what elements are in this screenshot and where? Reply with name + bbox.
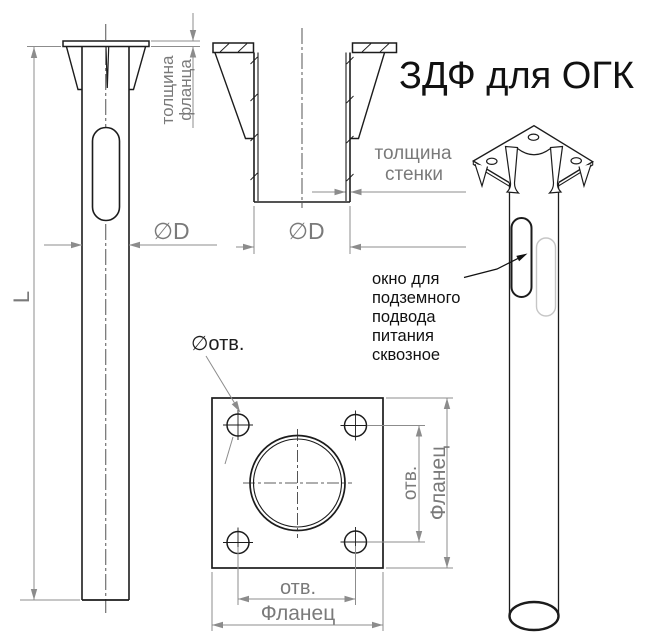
- arrow-right-icon: [335, 189, 346, 195]
- section-diameter-label: ∅D: [288, 218, 325, 244]
- arrow-up-icon: [444, 398, 450, 409]
- iso-tube-bottom-rim: [510, 602, 559, 630]
- front-view: L ∅D толщина фланца: [9, 13, 217, 613]
- front-flange-plate: [63, 41, 149, 47]
- section-flange-right: [353, 43, 397, 53]
- hole-diameter-label: ∅отв.: [191, 333, 244, 355]
- arrow-right-icon: [345, 596, 356, 602]
- technical-drawing-page: L ∅D толщина фланца: [0, 0, 650, 642]
- arrow-up-icon: [31, 47, 37, 58]
- length-label: L: [9, 291, 34, 303]
- arrow-up-icon: [416, 426, 422, 437]
- window-note-line2: подземного: [372, 289, 460, 307]
- section-gusset-left: [215, 53, 254, 139]
- arrow-down-icon: [416, 531, 422, 542]
- arrow-up-icon: [190, 47, 196, 58]
- arrow-down-icon: [190, 30, 196, 41]
- window-note-line4: питания: [372, 327, 434, 345]
- arrow-left-icon: [129, 242, 140, 248]
- arrow-left-icon: [350, 244, 361, 250]
- window-note-line1: окно для: [372, 270, 439, 288]
- window-note-line5: сквозное: [372, 346, 440, 364]
- drawing-canvas: L ∅D толщина фланца: [0, 0, 650, 642]
- drawing-title: ЗДФ для ОГК: [399, 55, 634, 97]
- arrow-down-icon: [444, 557, 450, 568]
- flange-plan-view: ∅отв. отв. Фланец: [191, 333, 453, 631]
- flange-height-label: Фланец: [427, 446, 450, 521]
- iso-view: окно для подземного подвода питания скво…: [372, 126, 593, 630]
- arrow-right-icon: [372, 622, 383, 628]
- front-diameter-label: ∅D: [153, 218, 190, 244]
- front-gusset-left: [67, 47, 83, 90]
- front-window-slot: [93, 128, 120, 221]
- section-flange-left: [213, 43, 254, 53]
- hole-spacing-label-h: отв.: [280, 577, 316, 599]
- flange-thickness-label-line2: фланца: [176, 59, 195, 121]
- front-gusset-center-edge: [106, 47, 109, 88]
- flange-width-label: Фланец: [261, 602, 336, 625]
- arrow-right-icon: [243, 244, 254, 250]
- window-note-line3: подвода: [372, 308, 436, 326]
- arrow-down-icon: [31, 589, 37, 600]
- arrow-left-icon: [351, 189, 362, 195]
- length-dimension: [20, 47, 80, 601]
- window-annotation: окно для подземного подвода питания скво…: [372, 254, 528, 365]
- wall-thickness-label-line1: толщина: [374, 143, 451, 164]
- front-gusset-right: [130, 47, 146, 90]
- arrow-left-icon: [212, 622, 223, 628]
- wall-thickness-label-line2: стенки: [385, 164, 443, 185]
- flange-thickness-label-line1: толщина: [158, 55, 177, 124]
- hole-spacing-label-v: отв.: [400, 466, 421, 500]
- arrow-left-icon: [238, 596, 249, 602]
- arrow-right-icon: [71, 242, 82, 248]
- section-gusset-right: [350, 53, 385, 139]
